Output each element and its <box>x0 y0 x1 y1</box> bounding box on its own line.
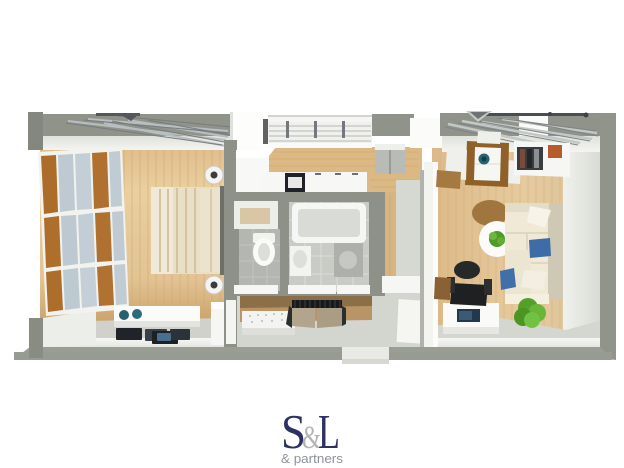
svg-text:& partners: & partners <box>281 452 343 466</box>
svg-text:L: L <box>318 404 340 459</box>
